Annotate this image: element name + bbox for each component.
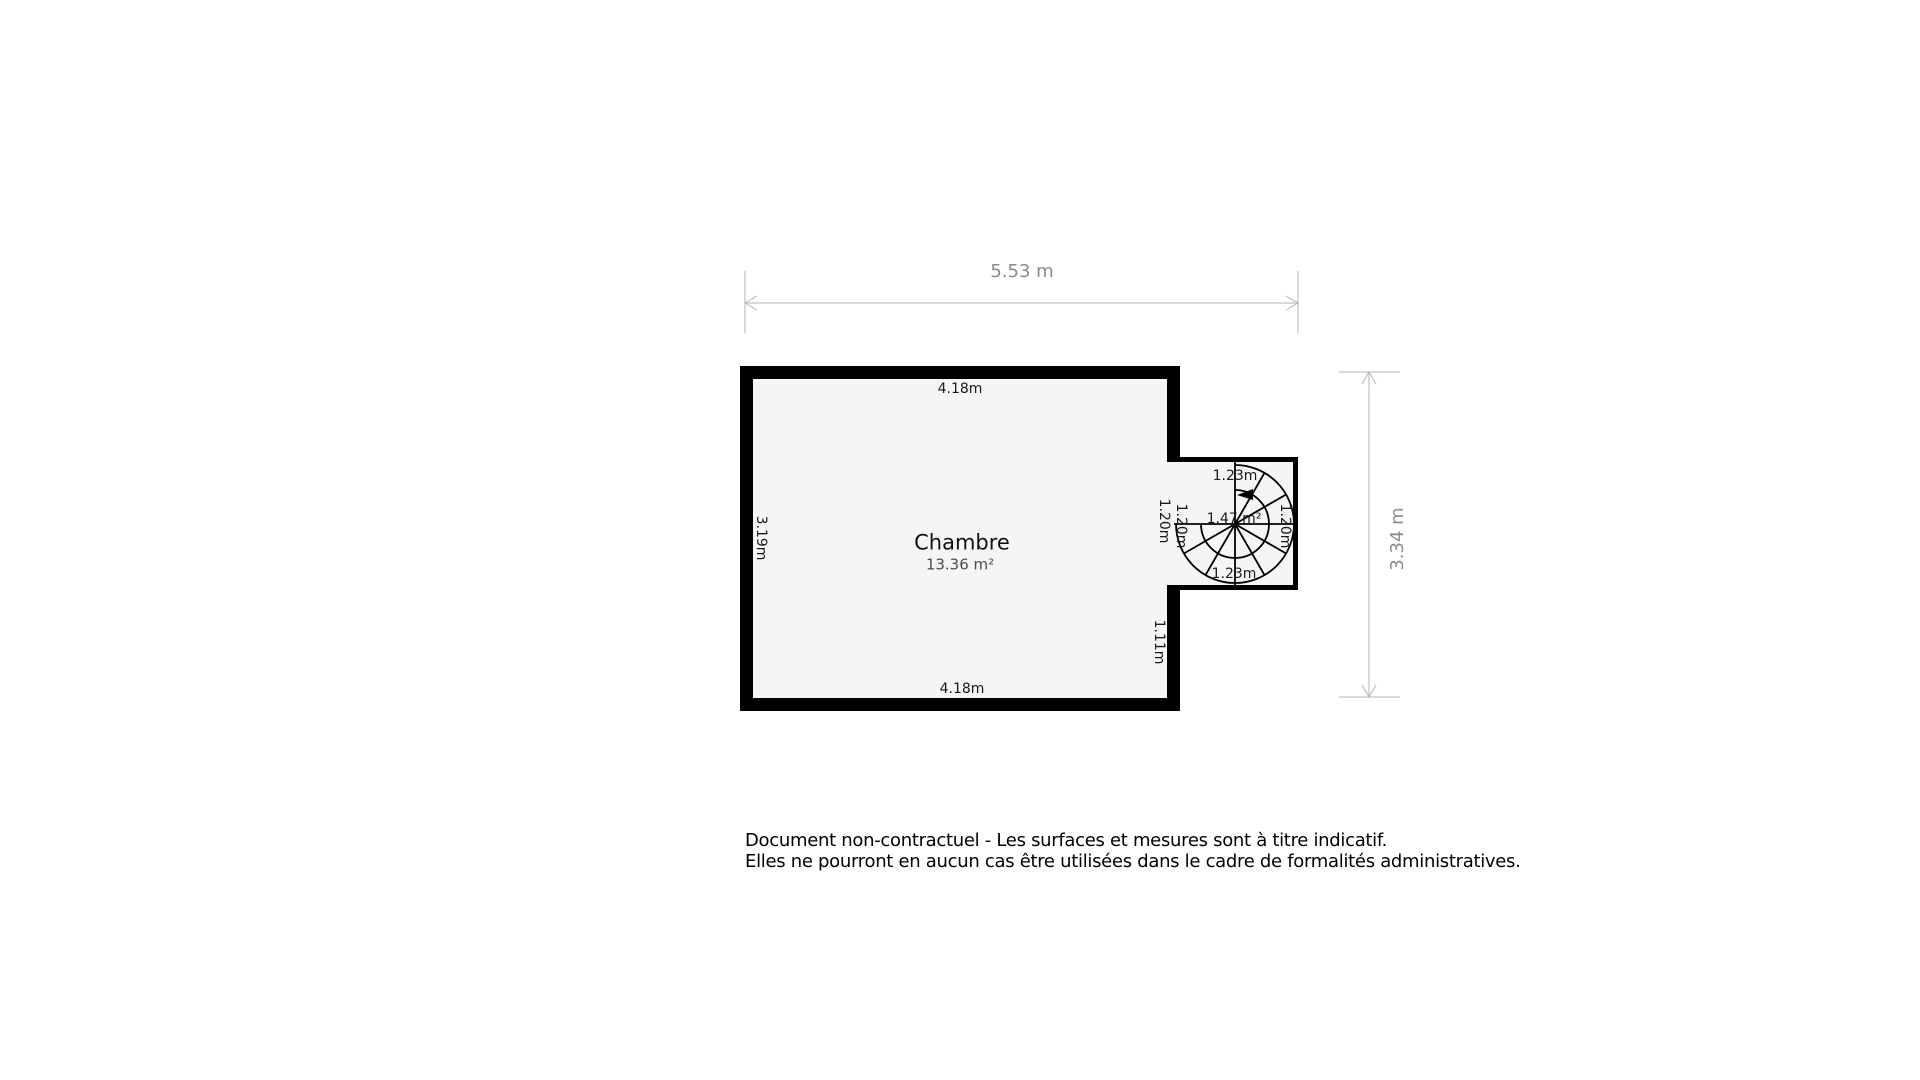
wall-length-label-top: 4.18m <box>938 382 983 396</box>
stair-area-label: 1.47 m² <box>1207 512 1262 526</box>
wall-right-upper <box>1167 366 1180 462</box>
disclaimer-line-1: Document non-contractuel - Les surfaces … <box>745 830 1521 851</box>
opening-width-label-inner: 1.20m <box>1174 504 1188 549</box>
floor-plan-page: 5.53 m 3.34 m Chambre 13.36 m² 4.18m 4.1… <box>0 0 1920 1080</box>
stair-wall-top <box>1167 457 1298 462</box>
wall-length-label-lower-right: 1.11m <box>1152 620 1166 665</box>
overall-height-label: 3.34 m <box>1389 507 1407 570</box>
disclaimer-line-2: Elles ne pourront en aucun cas être util… <box>745 851 1521 872</box>
room-name-label: Chambre <box>914 533 1010 554</box>
opening-width-label-outer: 1.20m <box>1157 499 1171 544</box>
disclaimer-text: Document non-contractuel - Les surfaces … <box>745 830 1521 872</box>
overall-width-label: 5.53 m <box>990 263 1053 281</box>
wall-length-label-left: 3.19m <box>754 516 768 561</box>
stair-wall-bottom <box>1167 585 1298 590</box>
wall-bottom <box>740 698 1180 711</box>
room-area-label: 13.36 m² <box>926 558 994 573</box>
wall-left <box>740 366 753 711</box>
wall-top <box>740 366 1180 379</box>
stair-depth-label-right: 1.20m <box>1278 504 1292 549</box>
stair-width-label-top: 1.23m <box>1213 469 1258 483</box>
wall-length-label-bottom: 4.18m <box>940 682 985 696</box>
stair-width-label-bottom: 1.23m <box>1212 567 1257 581</box>
wall-right-lower <box>1167 590 1180 711</box>
